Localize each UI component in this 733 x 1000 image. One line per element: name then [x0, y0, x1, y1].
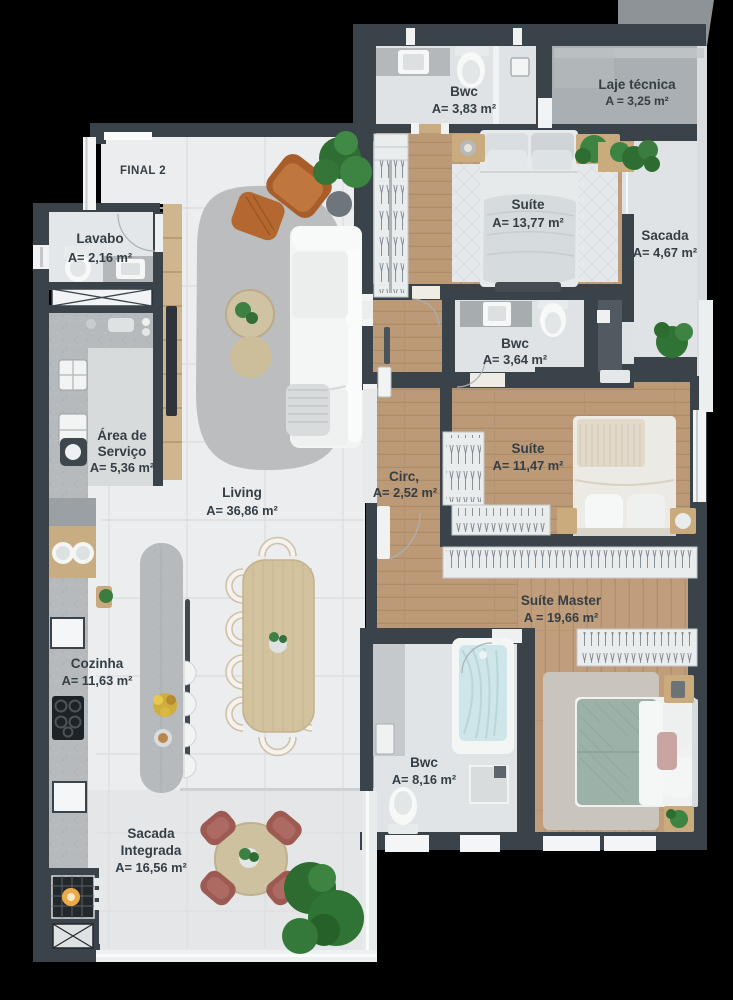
svg-text:A = 3,25 m²: A = 3,25 m² — [605, 94, 668, 108]
svg-text:Lavabo: Lavabo — [76, 231, 123, 246]
svg-text:A= 4,67 m²: A= 4,67 m² — [633, 245, 697, 260]
svg-text:Área de: Área de — [97, 428, 147, 443]
svg-text:Laje técnica: Laje técnica — [598, 77, 676, 92]
svg-text:A= 8,16 m²: A= 8,16 m² — [392, 772, 456, 787]
svg-text:A= 36,86 m²: A= 36,86 m² — [206, 503, 278, 518]
svg-text:A= 5,36 m²: A= 5,36 m² — [90, 460, 154, 475]
svg-text:A= 2,52 m²: A= 2,52 m² — [373, 485, 437, 500]
svg-text:Bwc: Bwc — [450, 84, 478, 99]
svg-text:Suíte: Suíte — [511, 441, 544, 456]
svg-text:A= 3,64 m²: A= 3,64 m² — [483, 352, 547, 367]
svg-text:FINAL 2: FINAL 2 — [120, 165, 166, 177]
svg-text:A= 11,47 m²: A= 11,47 m² — [493, 458, 564, 473]
svg-text:Bwc: Bwc — [410, 755, 438, 770]
svg-text:A = 19,66 m²: A = 19,66 m² — [524, 610, 599, 625]
svg-text:Circ,: Circ, — [389, 469, 419, 484]
svg-text:Living: Living — [222, 485, 262, 500]
svg-text:Bwc: Bwc — [501, 336, 529, 351]
svg-text:A= 11,63 m²: A= 11,63 m² — [62, 673, 133, 688]
svg-text:Sacada: Sacada — [127, 826, 175, 841]
svg-text:Serviço: Serviço — [98, 444, 147, 459]
svg-text:Suíte Master: Suíte Master — [521, 593, 602, 608]
svg-text:Sacada: Sacada — [641, 228, 689, 243]
svg-text:Cozinha: Cozinha — [71, 656, 124, 671]
svg-text:Suíte: Suíte — [511, 197, 544, 212]
svg-text:Integrada: Integrada — [121, 843, 182, 858]
svg-text:A= 16,56 m²: A= 16,56 m² — [115, 860, 187, 875]
svg-text:A= 13,77 m²: A= 13,77 m² — [492, 215, 564, 230]
svg-text:A= 3,83 m²: A= 3,83 m² — [432, 101, 496, 116]
svg-text:A= 2,16 m²: A= 2,16 m² — [68, 250, 132, 265]
